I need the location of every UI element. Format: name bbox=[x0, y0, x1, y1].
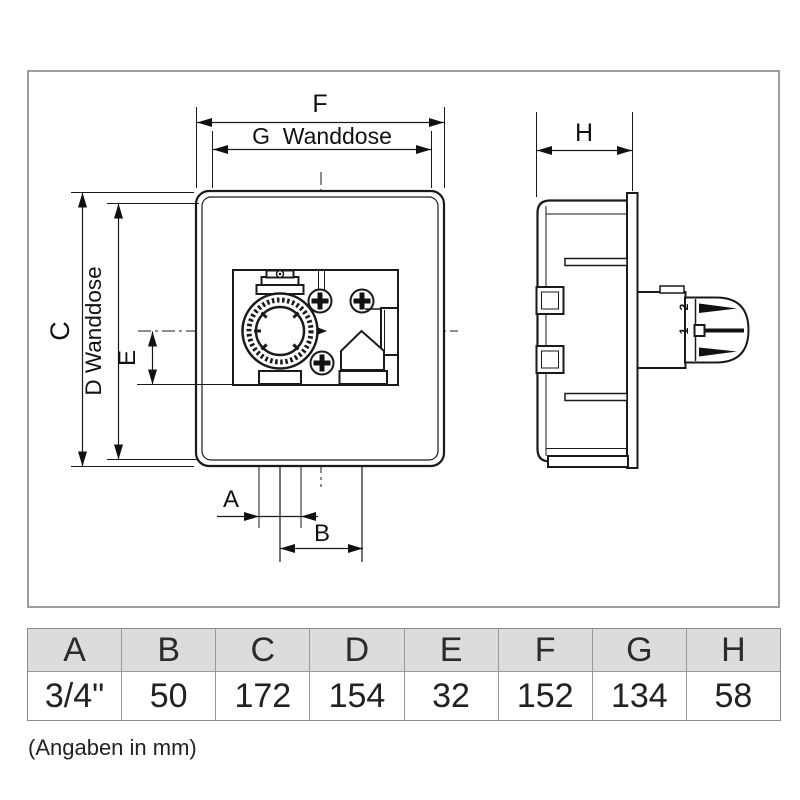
screw-bottom bbox=[311, 352, 334, 375]
screw-top-left bbox=[309, 290, 332, 313]
valve-knob: 2 1 bbox=[677, 298, 749, 363]
dim-label-b: B bbox=[314, 520, 330, 547]
side-outlet bbox=[381, 308, 398, 355]
dim-label-e: E bbox=[114, 350, 141, 366]
side-view: 2 1 H bbox=[537, 112, 749, 468]
right-foot bbox=[340, 371, 388, 384]
table-header-row: A B C D E F G H bbox=[28, 629, 780, 672]
side-box bbox=[538, 201, 631, 462]
dimension-C: C bbox=[45, 193, 194, 467]
dim-label-c: C bbox=[45, 321, 75, 341]
dim-label-g: G Wanddose bbox=[252, 123, 392, 149]
dimension-G: G Wanddose bbox=[213, 123, 432, 188]
lower-clip bbox=[537, 346, 564, 373]
dimension-table: A B C D E F G H 3/4" 50 172 154 32 152 1… bbox=[27, 628, 781, 721]
front-view: F G Wanddose C D Wanddose E bbox=[45, 90, 458, 562]
left-foot bbox=[259, 371, 301, 384]
table-value-row: 3/4" 50 172 154 32 152 134 58 bbox=[28, 672, 780, 720]
dim-label-a: A bbox=[223, 486, 239, 513]
dimension-H: H bbox=[537, 112, 633, 197]
table-header-cell: F bbox=[499, 629, 593, 672]
knob-pointer-base bbox=[695, 325, 705, 336]
housing-tab bbox=[660, 286, 684, 293]
technical-drawing-page: F G Wanddose C D Wanddose E bbox=[0, 0, 800, 800]
table-header-cell: C bbox=[216, 629, 310, 672]
knob-mark-1: 1 bbox=[677, 327, 691, 334]
upper-clip bbox=[537, 287, 564, 314]
table-value-cell: 50 bbox=[122, 672, 216, 720]
bottom-step bbox=[548, 456, 628, 467]
table-header-cell: B bbox=[122, 629, 216, 672]
table-value-cell: 32 bbox=[405, 672, 499, 720]
table-value-cell: 134 bbox=[593, 672, 687, 720]
dimension-B: B bbox=[280, 520, 363, 553]
valve-body bbox=[243, 294, 318, 369]
units-footnote: (Angaben in mm) bbox=[28, 735, 197, 761]
table-value-cell: 58 bbox=[687, 672, 780, 720]
table-value-cell: 3/4" bbox=[28, 672, 122, 720]
dim-label-h: H bbox=[575, 119, 593, 147]
lower-rib bbox=[565, 394, 627, 401]
table-value-cell: 172 bbox=[216, 672, 310, 720]
knob-mark-2: 2 bbox=[677, 303, 691, 310]
table-header-cell: H bbox=[687, 629, 780, 672]
dim-label-f: F bbox=[312, 90, 327, 118]
knob-pointer bbox=[702, 329, 744, 333]
front-flange bbox=[627, 193, 638, 468]
table-header-cell: E bbox=[405, 629, 499, 672]
table-header-cell: A bbox=[28, 629, 122, 672]
table-header-cell: D bbox=[310, 629, 404, 672]
table-value-cell: 154 bbox=[310, 672, 404, 720]
table-header-cell: G bbox=[593, 629, 687, 672]
table-value-cell: 152 bbox=[499, 672, 593, 720]
dim-label-d: D Wanddose bbox=[81, 266, 106, 395]
upper-rib bbox=[565, 259, 627, 266]
dimension-drawing: F G Wanddose C D Wanddose E bbox=[0, 0, 800, 620]
dimension-A: A bbox=[217, 486, 318, 521]
